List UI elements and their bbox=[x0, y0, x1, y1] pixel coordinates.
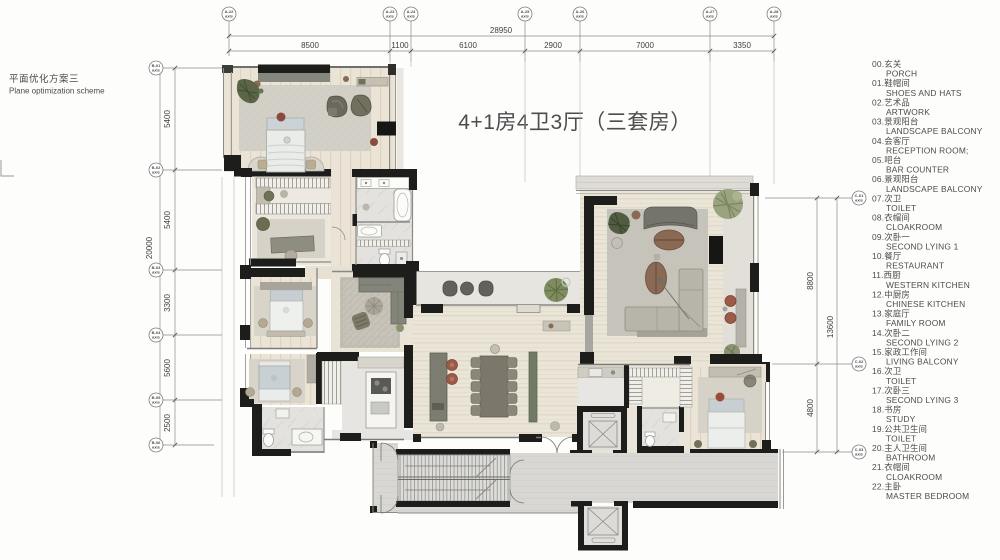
svg-text:13.家庭厅: 13.家庭厅 bbox=[872, 309, 910, 319]
svg-text:04.会客厅: 04.会客厅 bbox=[872, 136, 910, 146]
svg-text:BAR COUNTER: BAR COUNTER bbox=[886, 165, 949, 175]
svg-text:6100: 6100 bbox=[459, 41, 477, 50]
svg-text:12.中厨房: 12.中厨房 bbox=[872, 289, 910, 299]
svg-text:平面优化方案三: 平面优化方案三 bbox=[9, 73, 79, 85]
svg-text:05.吧台: 05.吧台 bbox=[872, 155, 901, 165]
svg-text:17.次卧三: 17.次卧三 bbox=[872, 385, 910, 395]
svg-text:16.次卫: 16.次卫 bbox=[872, 366, 901, 376]
svg-text:CLOAKROOM: CLOAKROOM bbox=[886, 222, 942, 232]
svg-text:CHINESE KITCHEN: CHINESE KITCHEN bbox=[886, 299, 965, 309]
svg-text:TOILET: TOILET bbox=[886, 376, 916, 386]
svg-text:3350: 3350 bbox=[733, 41, 751, 50]
svg-text:axis: axis bbox=[855, 198, 864, 203]
svg-text:22.主卧: 22.主卧 bbox=[872, 481, 902, 491]
svg-text:CLOAKROOM: CLOAKROOM bbox=[886, 472, 942, 482]
svg-text:axis: axis bbox=[152, 170, 161, 175]
svg-text:7000: 7000 bbox=[636, 41, 654, 50]
svg-text:PORCH: PORCH bbox=[886, 69, 917, 79]
svg-text:LANDSCAPE BALCONY: LANDSCAPE BALCONY bbox=[886, 126, 983, 136]
svg-text:20.主人卫生间: 20.主人卫生间 bbox=[872, 443, 927, 453]
svg-text:FAMILY ROOM: FAMILY ROOM bbox=[886, 318, 946, 328]
svg-text:13600: 13600 bbox=[826, 315, 835, 338]
svg-text:RESTAURANT: RESTAURANT bbox=[886, 261, 944, 271]
svg-text:2500: 2500 bbox=[163, 414, 172, 432]
svg-text:08.衣帽间: 08.衣帽间 bbox=[872, 213, 910, 223]
svg-text:3300: 3300 bbox=[163, 294, 172, 312]
svg-text:15.家政工作间: 15.家政工作间 bbox=[872, 347, 927, 357]
svg-text:SECOND LYING 1: SECOND LYING 1 bbox=[886, 241, 959, 251]
svg-text:LIVING BALCONY: LIVING BALCONY bbox=[886, 357, 959, 367]
svg-text:01.鞋帽间: 01.鞋帽间 bbox=[872, 78, 910, 88]
svg-text:axis: axis bbox=[152, 68, 161, 73]
svg-text:SHOES AND HATS: SHOES AND HATS bbox=[886, 88, 962, 98]
svg-text:11.西厨: 11.西厨 bbox=[872, 270, 901, 280]
svg-text:09.次卧一: 09.次卧一 bbox=[872, 232, 910, 242]
svg-text:5400: 5400 bbox=[163, 110, 172, 128]
svg-text:5400: 5400 bbox=[163, 211, 172, 229]
svg-text:axis: axis bbox=[407, 14, 416, 19]
svg-text:8500: 8500 bbox=[301, 41, 319, 50]
svg-text:19.公共卫生间: 19.公共卫生间 bbox=[872, 424, 927, 434]
svg-text:SECOND LYING 3: SECOND LYING 3 bbox=[886, 395, 959, 405]
svg-text:axis: axis bbox=[855, 364, 864, 369]
svg-text:WESTERN KITCHEN: WESTERN KITCHEN bbox=[886, 280, 970, 290]
svg-text:4800: 4800 bbox=[806, 399, 815, 417]
svg-text:07.次卫: 07.次卫 bbox=[872, 193, 901, 203]
svg-text:1100: 1100 bbox=[391, 41, 409, 50]
svg-text:18.书房: 18.书房 bbox=[872, 405, 901, 415]
svg-text:TOILET: TOILET bbox=[886, 433, 916, 443]
svg-text:SECOND LYING 2: SECOND LYING 2 bbox=[886, 337, 959, 347]
svg-text:Plane optimization scheme: Plane optimization scheme bbox=[9, 87, 105, 96]
svg-text:STUDY: STUDY bbox=[886, 414, 916, 424]
svg-text:02.艺术品: 02.艺术品 bbox=[872, 97, 910, 107]
svg-text:ARTWORK: ARTWORK bbox=[886, 107, 930, 117]
svg-text:TOILET: TOILET bbox=[886, 203, 916, 213]
svg-text:LANDSCAPE BALCONY: LANDSCAPE BALCONY bbox=[886, 184, 983, 194]
svg-text:axis: axis bbox=[152, 270, 161, 275]
svg-text:MASTER BEDROOM: MASTER BEDROOM bbox=[886, 491, 969, 501]
svg-text:axis: axis bbox=[152, 445, 161, 450]
svg-text:axis: axis bbox=[521, 14, 530, 19]
svg-text:5600: 5600 bbox=[163, 359, 172, 377]
svg-text:28950: 28950 bbox=[490, 26, 513, 35]
svg-text:14.次卧二: 14.次卧二 bbox=[872, 328, 910, 338]
svg-text:8800: 8800 bbox=[806, 272, 815, 290]
svg-text:axis: axis bbox=[152, 335, 161, 340]
svg-text:20000: 20000 bbox=[145, 236, 154, 259]
svg-text:axis: axis bbox=[386, 14, 395, 19]
svg-text:axis: axis bbox=[152, 400, 161, 405]
svg-text:21.衣帽间: 21.衣帽间 bbox=[872, 462, 910, 472]
svg-text:axis: axis bbox=[855, 452, 864, 457]
svg-text:10.餐厅: 10.餐厅 bbox=[872, 251, 901, 261]
svg-text:axis: axis bbox=[706, 14, 715, 19]
svg-text:RECEPTION ROOM;: RECEPTION ROOM; bbox=[886, 145, 969, 155]
svg-text:axis: axis bbox=[576, 14, 585, 19]
svg-text:2900: 2900 bbox=[544, 41, 562, 50]
svg-text:axis: axis bbox=[770, 14, 779, 19]
svg-text:06.景观阳台: 06.景观阳台 bbox=[872, 174, 919, 184]
svg-text:4+1房4卫3厅（三套房）: 4+1房4卫3厅（三套房） bbox=[458, 111, 691, 134]
svg-text:03.景观阳台: 03.景观阳台 bbox=[872, 117, 919, 127]
svg-text:00.玄关: 00.玄关 bbox=[872, 59, 902, 69]
svg-text:axis: axis bbox=[225, 14, 234, 19]
svg-text:BATHROOM: BATHROOM bbox=[886, 453, 935, 463]
